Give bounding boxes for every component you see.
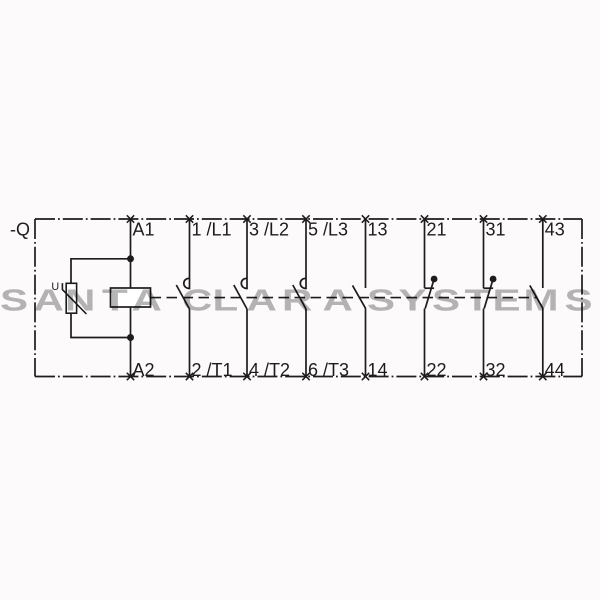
svg-text:-Q: -Q [10,219,30,239]
svg-text:2 /T1: 2 /T1 [192,360,233,380]
svg-text:3 /L2: 3 /L2 [249,219,289,239]
svg-text:1 /L1: 1 /L1 [192,219,232,239]
svg-text:SANTA CLARA SYSTEMS: SANTA CLARA SYSTEMS [0,283,593,317]
svg-text:22: 22 [427,360,447,380]
svg-text:32: 32 [486,360,506,380]
svg-text:6 /T3: 6 /T3 [308,360,349,380]
svg-text:14: 14 [368,360,388,380]
svg-text:21: 21 [427,219,447,239]
svg-text:5 /L3: 5 /L3 [308,219,348,239]
svg-text:31: 31 [486,219,506,239]
svg-text:13: 13 [368,219,388,239]
svg-text:4 /T2: 4 /T2 [249,360,290,380]
svg-text:44: 44 [545,360,565,380]
svg-text:43: 43 [545,219,565,239]
svg-text:A1: A1 [133,219,155,239]
svg-text:A2: A2 [133,360,155,380]
